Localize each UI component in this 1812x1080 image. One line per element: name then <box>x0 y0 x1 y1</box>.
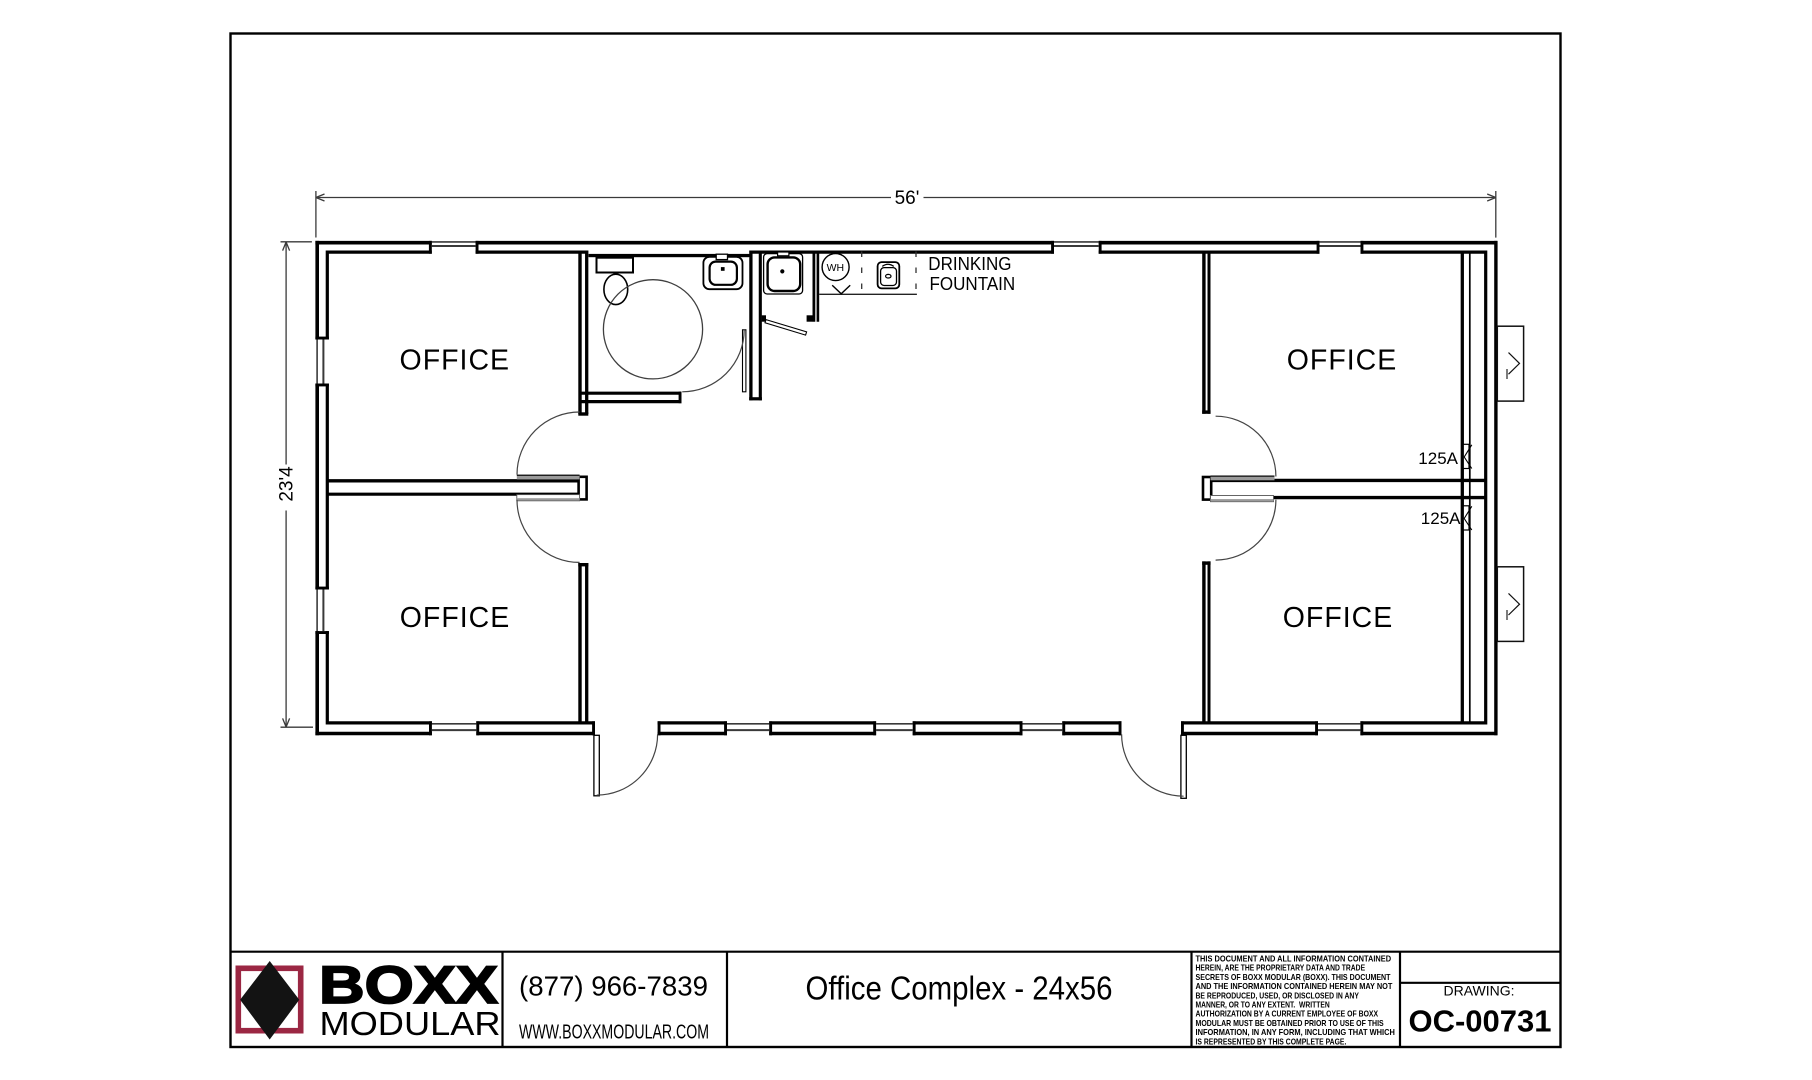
svg-text:WH: WH <box>827 262 845 274</box>
svg-text:23'4: 23'4 <box>277 466 298 502</box>
svg-text:OFFICE: OFFICE <box>1283 602 1394 634</box>
svg-text:Office Complex - 24x56: Office Complex - 24x56 <box>806 970 1113 1007</box>
svg-text:WWW.BOXXMODULAR.COM: WWW.BOXXMODULAR.COM <box>519 1022 709 1044</box>
svg-text:(877) 966-7839: (877) 966-7839 <box>519 971 708 1002</box>
svg-text:OC-00731: OC-00731 <box>1408 1004 1551 1039</box>
svg-text:DRAWING:: DRAWING: <box>1443 983 1514 999</box>
svg-text:56': 56' <box>895 188 920 209</box>
svg-text:125A: 125A <box>1421 509 1461 528</box>
svg-text:MODULAR: MODULAR <box>320 1005 501 1042</box>
svg-text:OFFICE: OFFICE <box>1287 344 1398 376</box>
svg-text:125A: 125A <box>1418 449 1458 468</box>
svg-text:OFFICE: OFFICE <box>400 602 511 634</box>
svg-text:OFFICE: OFFICE <box>400 344 511 376</box>
svg-text:DRINKING: DRINKING <box>928 254 1011 274</box>
svg-text:FOUNTAIN: FOUNTAIN <box>930 274 1016 294</box>
svg-text:IS REPRESENTED BY THIS COMPLET: IS REPRESENTED BY THIS COMPLETE PAGE. <box>1196 1036 1347 1046</box>
